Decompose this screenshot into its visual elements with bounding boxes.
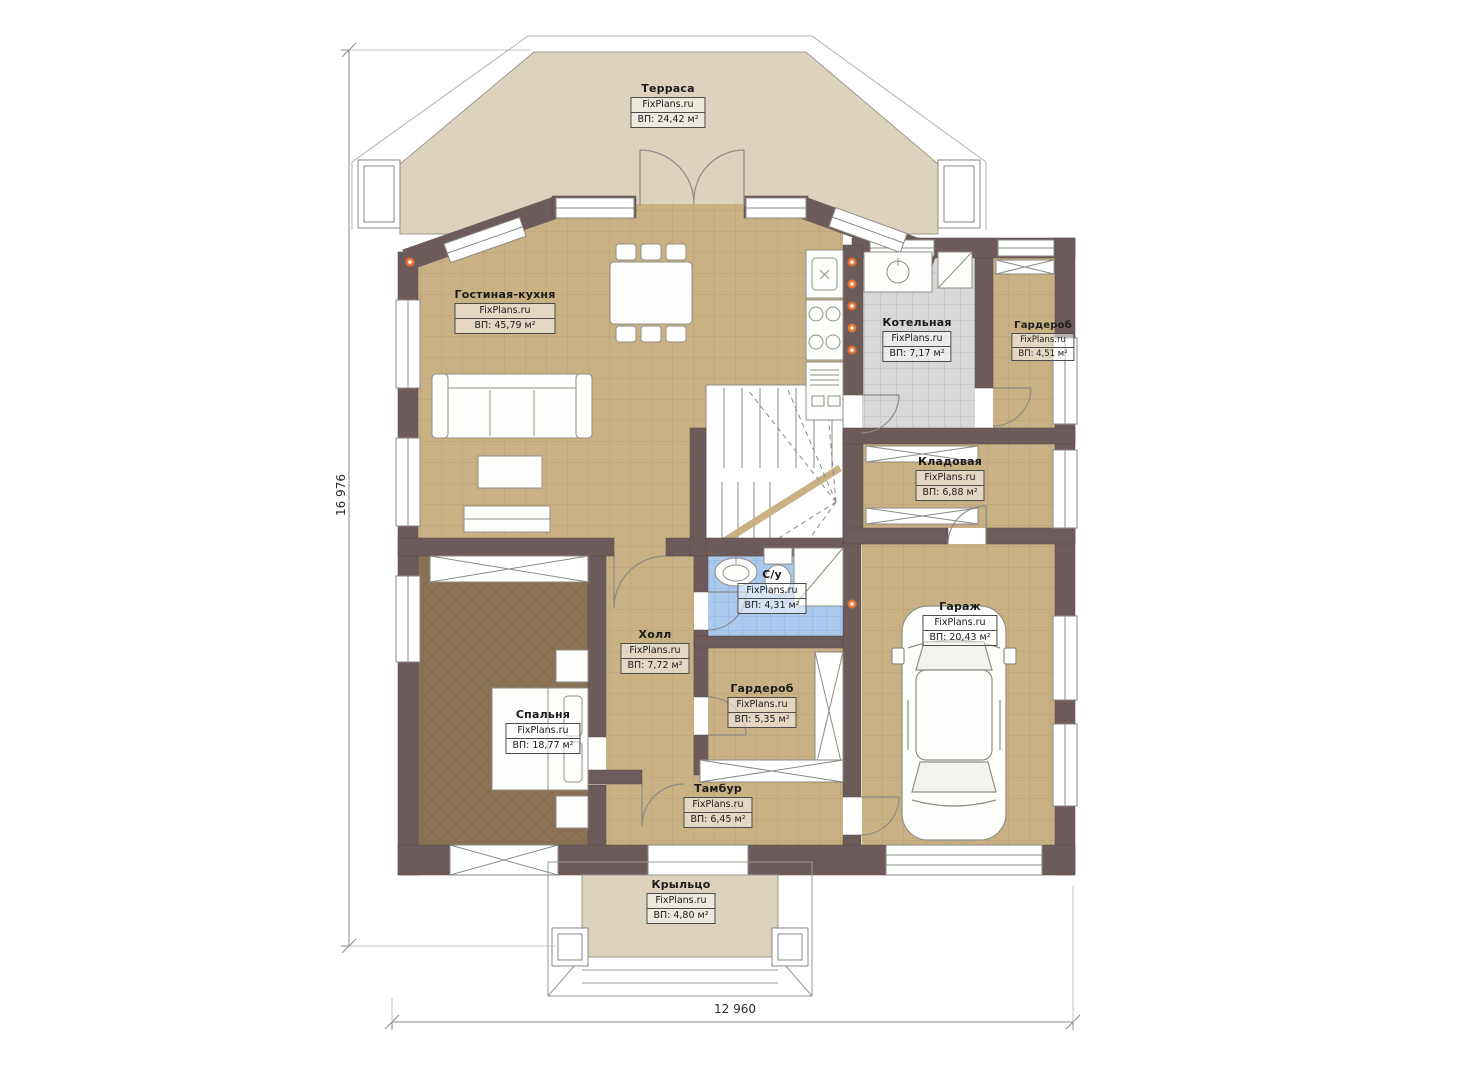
room-label-bathroom: С/у FixPlans.ru ВП: 4,31 м² <box>737 568 806 614</box>
boiler-fixtures <box>864 252 972 292</box>
room-label-storage: Кладовая FixPlans.ru ВП: 6,88 м² <box>915 455 984 501</box>
room-name: Тамбур <box>683 782 752 795</box>
room-label-terrace: Терраса FixPlans.ru ВП: 24,42 м² <box>630 82 705 128</box>
room-name: Спальня <box>505 708 580 721</box>
room-area: ВП: 7,17 м² <box>883 346 950 361</box>
room-label-wardrobe-2: Гардероб FixPlans.ru ВП: 5,35 м² <box>727 682 796 728</box>
room-area: ВП: 7,72 м² <box>621 658 688 673</box>
brand-link: FixPlans.ru <box>883 332 950 346</box>
dimension-height-label: 16 976 <box>334 465 348 525</box>
brand-link: FixPlans.ru <box>684 798 751 812</box>
brand-link: FixPlans.ru <box>455 304 554 318</box>
room-label-wardrobe-top: Гардероб FixPlans.ru ВП: 4,51 м² <box>1011 320 1074 361</box>
room-label-living-kitchen: Гостиная-кухня FixPlans.ru ВП: 45,79 м² <box>454 288 555 334</box>
room-area: ВП: 18,77 м² <box>506 738 579 753</box>
room-name: Крыльцо <box>646 878 715 891</box>
brand-link: FixPlans.ru <box>916 471 983 485</box>
brand-link: FixPlans.ru <box>506 724 579 738</box>
room-name: Холл <box>620 628 689 641</box>
room-area: ВП: 6,88 м² <box>916 485 983 500</box>
room-name: С/у <box>737 568 806 581</box>
brand-link: FixPlans.ru <box>728 698 795 712</box>
room-label-hall: Холл FixPlans.ru ВП: 7,72 м² <box>620 628 689 674</box>
room-area: ВП: 4,31 м² <box>738 598 805 613</box>
tv-stand <box>464 506 550 532</box>
room-label-boiler: Котельная FixPlans.ru ВП: 7,17 м² <box>882 316 951 362</box>
room-area: ВП: 4,51 м² <box>1012 347 1073 361</box>
brand-link: FixPlans.ru <box>631 98 704 112</box>
dining-set <box>610 244 692 342</box>
room-label-porch: Крыльцо FixPlans.ru ВП: 4,80 м² <box>646 878 715 924</box>
room-label-tambour: Тамбур FixPlans.ru ВП: 6,45 м² <box>683 782 752 828</box>
room-name: Терраса <box>630 82 705 95</box>
room-label-garage: Гараж FixPlans.ru ВП: 20,43 м² <box>922 600 997 646</box>
room-area: ВП: 6,45 м² <box>684 812 751 827</box>
room-name: Котельная <box>882 316 951 329</box>
room-area: ВП: 5,35 м² <box>728 712 795 727</box>
dimension-width-label: 12 960 <box>690 1002 780 1016</box>
room-name: Гостиная-кухня <box>454 288 555 301</box>
room-label-bedroom: Спальня FixPlans.ru ВП: 18,77 м² <box>505 708 580 754</box>
brand-link: FixPlans.ru <box>738 584 805 598</box>
sofa <box>432 374 592 438</box>
floor-plan-drawing <box>0 0 1474 1080</box>
room-name: Гараж <box>922 600 997 613</box>
brand-link: FixPlans.ru <box>923 616 996 630</box>
room-area: ВП: 4,80 м² <box>647 908 714 923</box>
brand-link: FixPlans.ru <box>647 894 714 908</box>
brand-link: FixPlans.ru <box>1012 334 1073 347</box>
room-area: ВП: 45,79 м² <box>455 318 554 333</box>
kitchen-fixtures <box>806 250 843 420</box>
room-name: Кладовая <box>915 455 984 468</box>
room-name: Гардероб <box>727 682 796 695</box>
coffee-table <box>478 456 542 488</box>
floor-plan: 16 976 12 960 Терраса FixPlans.ru ВП: 24… <box>0 0 1474 1080</box>
room-area: ВП: 20,43 м² <box>923 630 996 645</box>
room-name: Гардероб <box>1011 320 1074 331</box>
brand-link: FixPlans.ru <box>621 644 688 658</box>
room-area: ВП: 24,42 м² <box>631 112 704 127</box>
